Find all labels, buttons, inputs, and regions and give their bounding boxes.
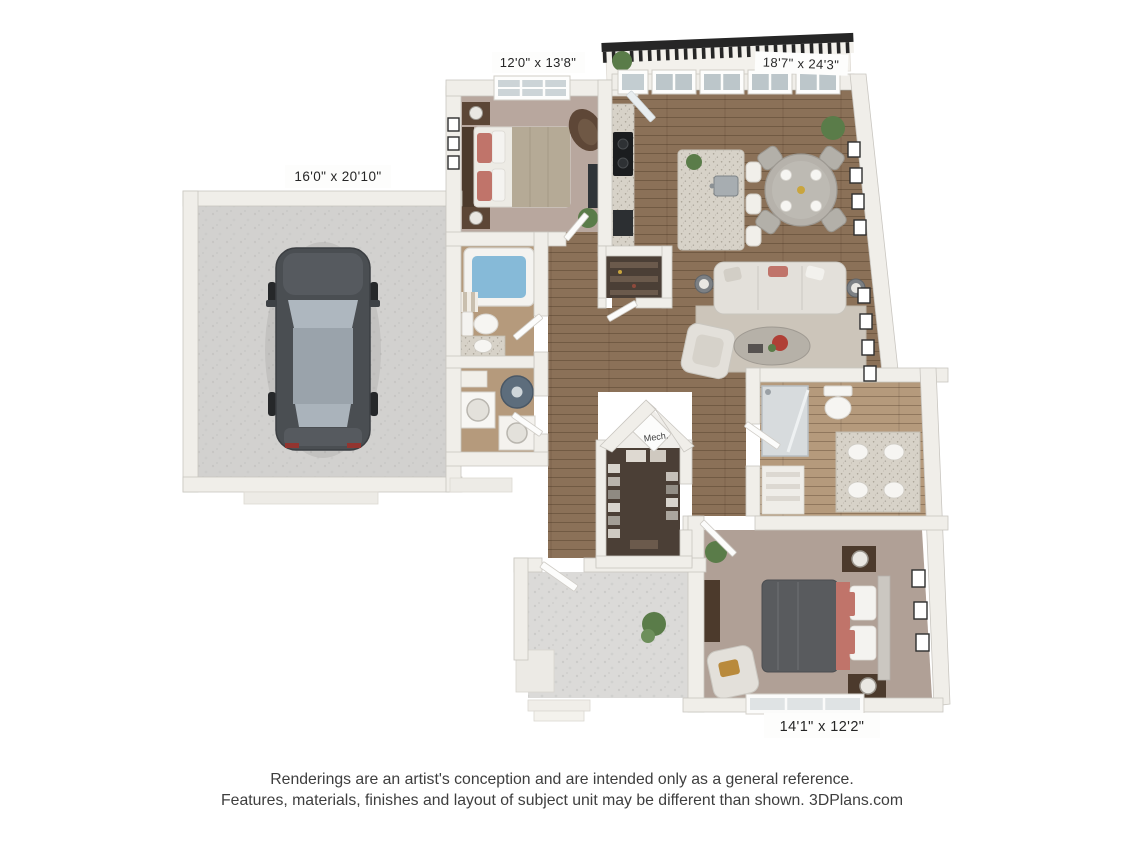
burner (618, 139, 628, 149)
island-plant (686, 154, 702, 170)
car-roof (293, 328, 353, 404)
car-mirror (266, 300, 277, 307)
wall-masterbath-west-a (746, 368, 760, 424)
car-mirror (369, 300, 380, 307)
wall-garage-top (183, 191, 462, 206)
wall-art (848, 142, 860, 157)
wall-closet-west (596, 440, 606, 566)
washer-drum (467, 399, 489, 421)
wall-art (448, 118, 459, 131)
wall-kitchen-west (598, 80, 612, 246)
table-lamp (470, 107, 483, 120)
media-console (588, 164, 598, 208)
cabinet (461, 371, 487, 387)
wall-garage-left (183, 191, 198, 492)
centerpiece (797, 186, 805, 194)
hanging-clothes (608, 490, 620, 499)
curtain-stripe (463, 292, 467, 312)
garage-dimensions: 16'0" x 20'10" (294, 169, 381, 184)
pantry-item (632, 284, 636, 288)
burner (618, 158, 628, 168)
wall-living-bottom (746, 368, 948, 382)
place-setting (781, 170, 792, 181)
comforter (762, 580, 838, 672)
wall-art (864, 366, 876, 381)
pillow (492, 169, 505, 201)
pantry-closet (610, 262, 658, 295)
car-hood (283, 253, 363, 295)
double-vanity (836, 432, 920, 512)
linen-closet (762, 466, 804, 514)
pantry-shelf (610, 276, 658, 282)
living-room (679, 262, 866, 380)
wall-pantry-bottom-b (636, 298, 672, 308)
wall-art (854, 220, 866, 235)
pillow (492, 131, 505, 163)
wall-patio-left (514, 558, 528, 660)
disclaimer: Renderings are an artist's conception an… (221, 771, 903, 809)
garage-door-panel (244, 492, 378, 504)
sink (474, 340, 492, 353)
wall-pantry-top (598, 246, 672, 256)
floorplan-page: Mech. (0, 0, 1125, 844)
toilet (462, 312, 498, 336)
closet-shelf-box (650, 450, 666, 462)
toilet (824, 386, 852, 419)
hanging-clothes (666, 485, 678, 494)
hall-south-planks (692, 382, 746, 516)
sink (848, 482, 868, 498)
toilet-bowl (474, 314, 498, 334)
place-setting (811, 170, 822, 181)
floorplan-rendering: Mech. (0, 0, 1125, 844)
wall-garage-bottom (183, 477, 462, 492)
table-lamp (852, 551, 868, 567)
water-heater-cap (512, 387, 523, 398)
wall-art (850, 168, 862, 183)
window-master-bedroom (746, 694, 864, 714)
blanket (512, 127, 570, 207)
shoe-shelf (630, 540, 658, 549)
hanging-clothes (608, 529, 620, 538)
wall-art (858, 288, 870, 303)
wall-art (914, 602, 927, 619)
hanging-clothes (608, 477, 620, 486)
accent-pillow (477, 171, 492, 201)
wall-pantry-bottom-a (598, 298, 606, 308)
toilet-bowl (825, 397, 851, 419)
hanging-clothes (608, 503, 620, 512)
wall-art (916, 634, 929, 651)
hanging-clothes (666, 511, 678, 520)
window-bedroom2 (494, 76, 570, 100)
toilet-tank (462, 312, 473, 336)
table-lamp (470, 212, 483, 225)
dresser (704, 580, 720, 642)
island-sink (714, 176, 738, 196)
oven (613, 210, 633, 236)
entry-step (528, 700, 590, 711)
bar-stool (746, 226, 761, 246)
wall-art (912, 570, 925, 587)
pantry-item (618, 270, 622, 274)
corner-plant (821, 116, 845, 140)
wall-bath2-east-a (534, 232, 548, 316)
headboard (878, 576, 890, 680)
sofa (714, 262, 846, 314)
wall-art (448, 156, 459, 169)
washer (461, 392, 495, 428)
shower-head (765, 389, 771, 395)
curtain-stripe (471, 292, 475, 312)
closet-shelf-box (626, 450, 646, 462)
linen-shelf (766, 496, 800, 501)
patio-plant-small (641, 629, 655, 643)
kitchen-island (678, 150, 744, 250)
place-setting (811, 201, 822, 212)
faucet (710, 184, 715, 189)
car-taillight (285, 443, 299, 448)
hallway-floor-planks (548, 232, 598, 558)
vanity-speckle (836, 432, 920, 512)
window-glass (750, 698, 860, 710)
bar-stool (746, 194, 761, 214)
car (266, 248, 380, 450)
tub-water (472, 256, 526, 298)
car-rear-window (295, 404, 351, 427)
place-setting (781, 201, 792, 212)
accent-pillow (477, 133, 492, 163)
accent-pillow (846, 592, 855, 616)
exterior-window-panel (450, 478, 512, 492)
wall-masterbath-west-b (746, 466, 760, 516)
car-taillight (347, 443, 361, 448)
table-lamp (860, 678, 876, 694)
disclaimer-line-1: Renderings are an artist's conception an… (270, 771, 853, 788)
sofa-accent-pillow (768, 266, 788, 277)
toilet-tank (824, 386, 852, 396)
wall-art (852, 194, 864, 209)
shower-enclosure (762, 386, 808, 456)
sink (884, 444, 904, 460)
shower (762, 386, 808, 456)
entry-step (534, 711, 584, 721)
flower-greens (768, 344, 776, 352)
hanging-clothes (608, 464, 620, 473)
linen-shelf (766, 484, 800, 489)
wall-bath2-east-b (534, 352, 548, 396)
master-bedroom-dimensions: 14'1" x 12'2" (780, 719, 865, 735)
garage (265, 242, 381, 458)
disclaimer-line-2: Features, materials, finishes and layout… (221, 792, 903, 809)
wall-art (860, 314, 872, 329)
table-lamp (699, 279, 709, 289)
car-wheel (268, 392, 276, 416)
hanging-clothes (666, 498, 678, 507)
linen-shelf (766, 472, 800, 477)
headboard (462, 127, 474, 207)
wall-bath-laundry-divider (446, 356, 534, 368)
vanity (461, 336, 505, 356)
wall-art (448, 137, 459, 150)
wall-closet-bottom (596, 556, 692, 568)
bedroom2-dimensions: 12'0" x 13'8" (500, 55, 577, 70)
coffee-table-books (748, 344, 763, 353)
hanging-clothes (666, 472, 678, 481)
bed-queen (462, 127, 570, 207)
wall-masterbed-top-b (755, 516, 948, 530)
bar-stool (746, 162, 761, 182)
living-dimensions: 18'7" x 24'3" (763, 55, 840, 73)
wall-art (862, 340, 874, 355)
wall-laundry-bottom (446, 452, 548, 466)
car-windshield (288, 300, 358, 328)
accent-pillow (846, 630, 855, 654)
balcony-door-glass (622, 74, 644, 90)
sink (848, 444, 868, 460)
pantry-shelf (610, 290, 658, 295)
label-living-group: 18'7" x 24'3" (755, 51, 849, 76)
pantry-shelf (610, 262, 658, 268)
sink (884, 482, 904, 498)
hanging-clothes (608, 516, 620, 525)
car-wheel (370, 392, 378, 416)
